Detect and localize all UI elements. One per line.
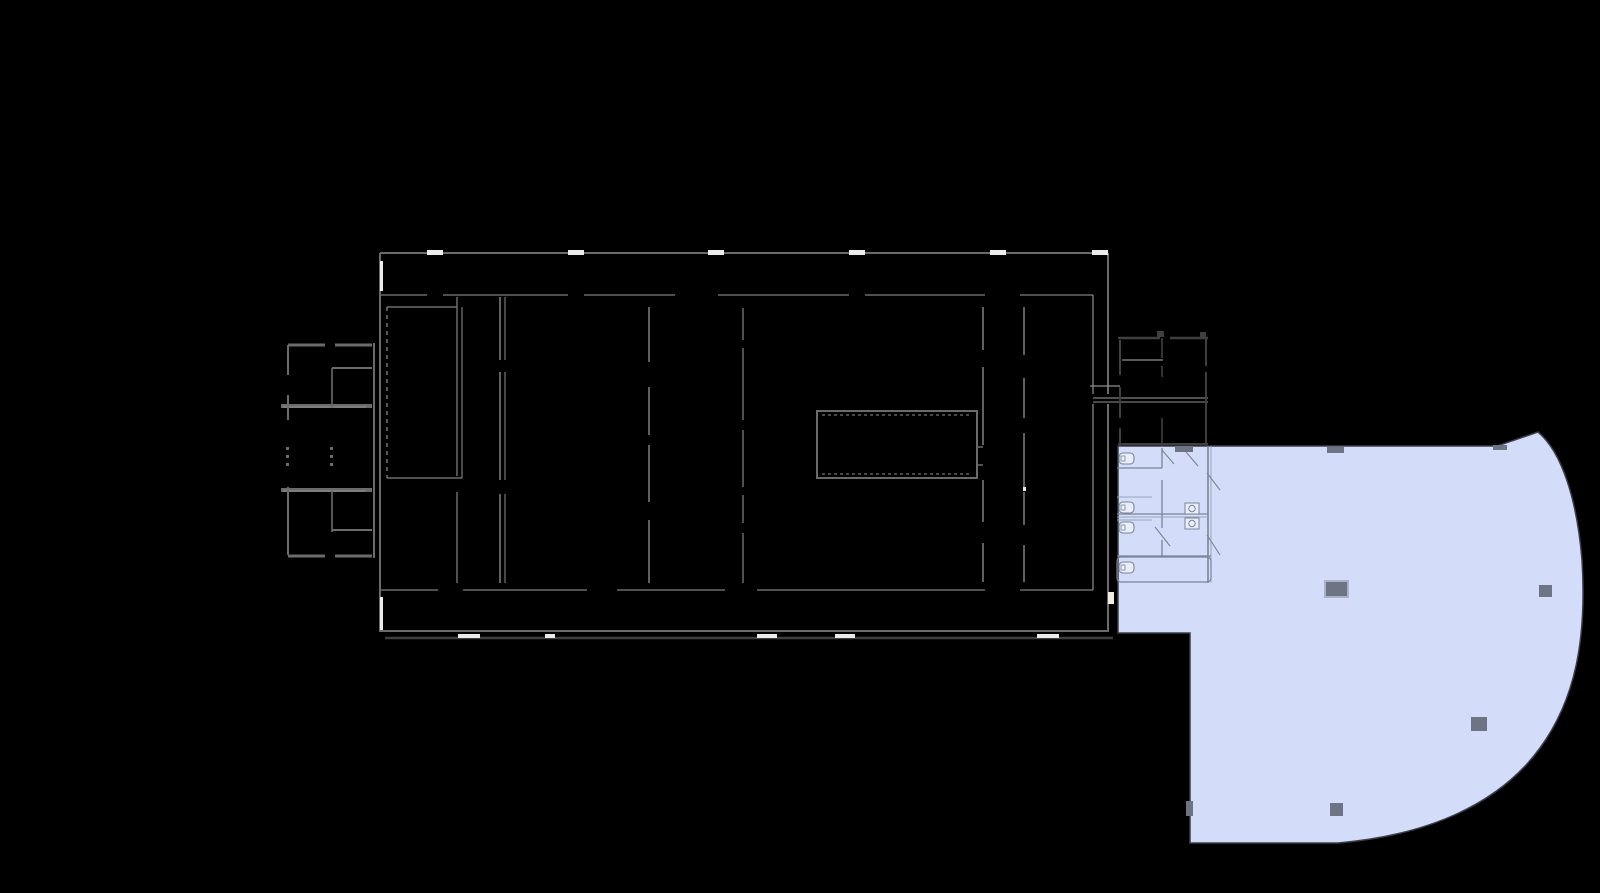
structural-column (1493, 445, 1507, 450)
structural-column (1471, 717, 1487, 731)
stair-tread-dot (330, 447, 333, 450)
window-mark (568, 250, 584, 255)
meeting-room-outline (817, 411, 977, 478)
structural-column-bordered (1325, 581, 1348, 597)
stair-tread-dot (286, 447, 289, 450)
structural-column (1539, 585, 1552, 597)
window-mark (990, 250, 1006, 255)
stair-tread-dot (330, 463, 333, 466)
door-mark (1108, 592, 1114, 604)
window-mark (708, 250, 724, 255)
structural-column (1330, 803, 1343, 816)
stair-tread-dot (286, 455, 289, 458)
window-mark (1037, 634, 1059, 638)
window-mark (757, 634, 777, 638)
window-mark (1092, 250, 1108, 255)
stair-tread-dot (330, 455, 333, 458)
window-mark (545, 634, 555, 638)
structural-column (1175, 446, 1193, 452)
floor-plan-viewer (0, 0, 1600, 893)
annex-wall-tick (1157, 331, 1164, 337)
window-mark (849, 250, 865, 255)
window-mark (835, 634, 855, 638)
sink-fixture (1185, 503, 1199, 514)
structural-column (1186, 801, 1193, 816)
highlighted-suite-region[interactable] (1118, 432, 1583, 843)
annex-wall-tick (1200, 332, 1206, 337)
sink-fixture (1185, 518, 1199, 529)
floor-plan-svg (0, 0, 1600, 893)
structural-column (1327, 447, 1344, 453)
door-mark (380, 597, 383, 630)
stair-tread-dot (286, 463, 289, 466)
window-mark (458, 634, 480, 638)
window-mark (427, 250, 443, 255)
door-mark (380, 261, 383, 291)
door-mark (1023, 487, 1026, 491)
